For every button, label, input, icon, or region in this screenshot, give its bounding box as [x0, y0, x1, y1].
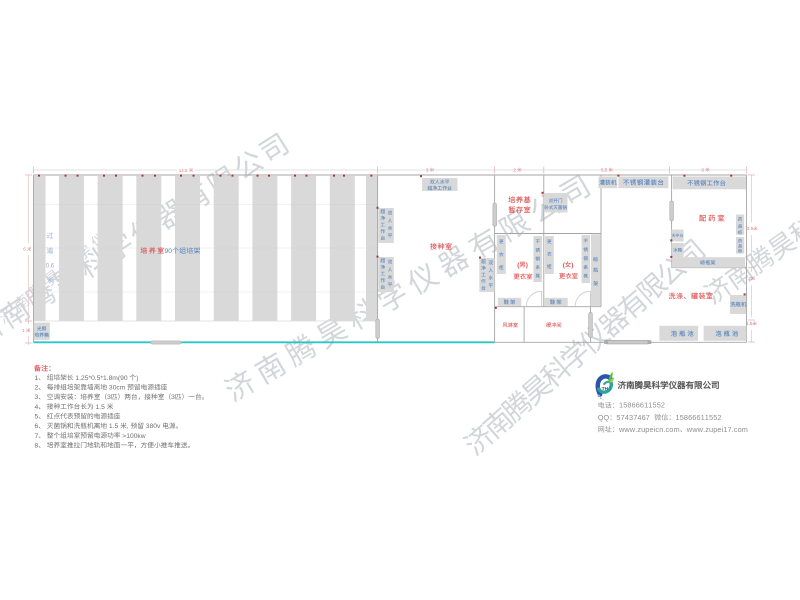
svg-text:2: 2 — [717, 413, 721, 422]
svg-text:4: 4 — [35, 404, 39, 411]
svg-text:5: 5 — [115, 423, 119, 430]
svg-text:): ) — [571, 262, 573, 269]
svg-text:5: 5 — [35, 414, 39, 421]
svg-text:7: 7 — [35, 433, 39, 440]
svg-text:6: 6 — [35, 423, 39, 430]
svg-text:3: 3 — [35, 394, 39, 401]
svg-text:,: , — [127, 423, 129, 430]
svg-text:5: 5 — [101, 404, 105, 411]
svg-text:m: m — [120, 385, 126, 392]
svg-text:): ) — [526, 262, 528, 269]
svg-text:w: w — [140, 433, 146, 440]
svg-text:m: m — [742, 425, 748, 434]
svg-text:m: m — [674, 425, 680, 434]
svg-text:0: 0 — [124, 375, 128, 382]
svg-text:8: 8 — [35, 443, 39, 450]
svg-text:1: 1 — [35, 375, 39, 382]
svg-text:2: 2 — [661, 401, 665, 410]
svg-text:Q: Q — [604, 413, 610, 422]
svg-text:): ) — [136, 375, 138, 382]
svg-text:2: 2 — [35, 385, 39, 392]
svg-text:7: 7 — [646, 413, 650, 422]
svg-text:3: 3 — [107, 394, 111, 401]
svg-text:3: 3 — [171, 394, 175, 401]
svg-text:0: 0 — [168, 248, 172, 255]
svg-text:TH: TH — [602, 386, 609, 391]
